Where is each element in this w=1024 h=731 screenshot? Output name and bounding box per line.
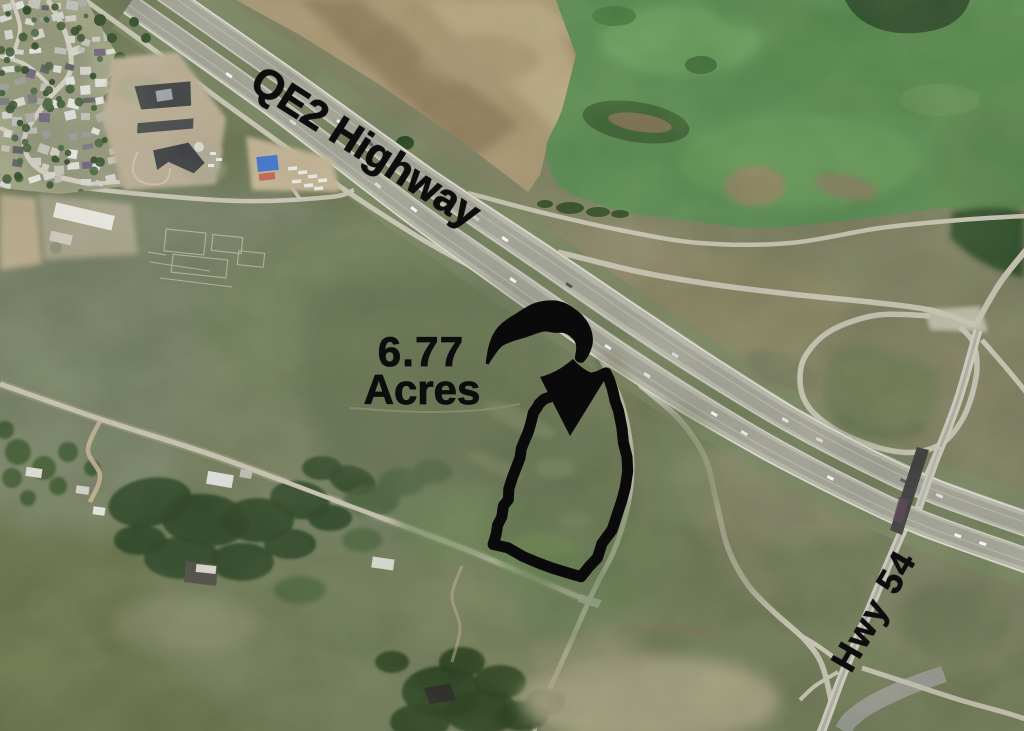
- svg-text:Acres: Acres: [364, 366, 481, 413]
